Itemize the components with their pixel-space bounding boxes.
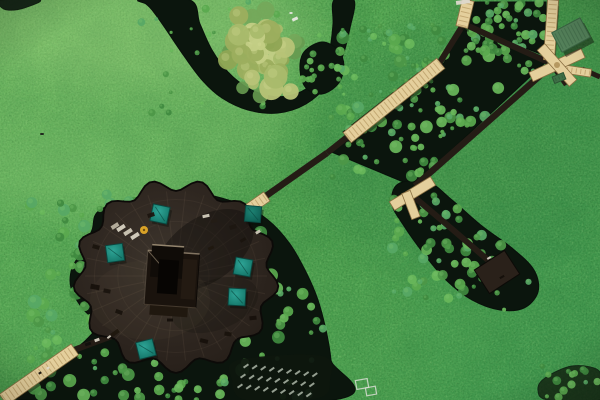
aerial-lotus-pond-photo [0, 0, 600, 400]
scene-svg [0, 0, 600, 400]
vignette [0, 0, 600, 400]
